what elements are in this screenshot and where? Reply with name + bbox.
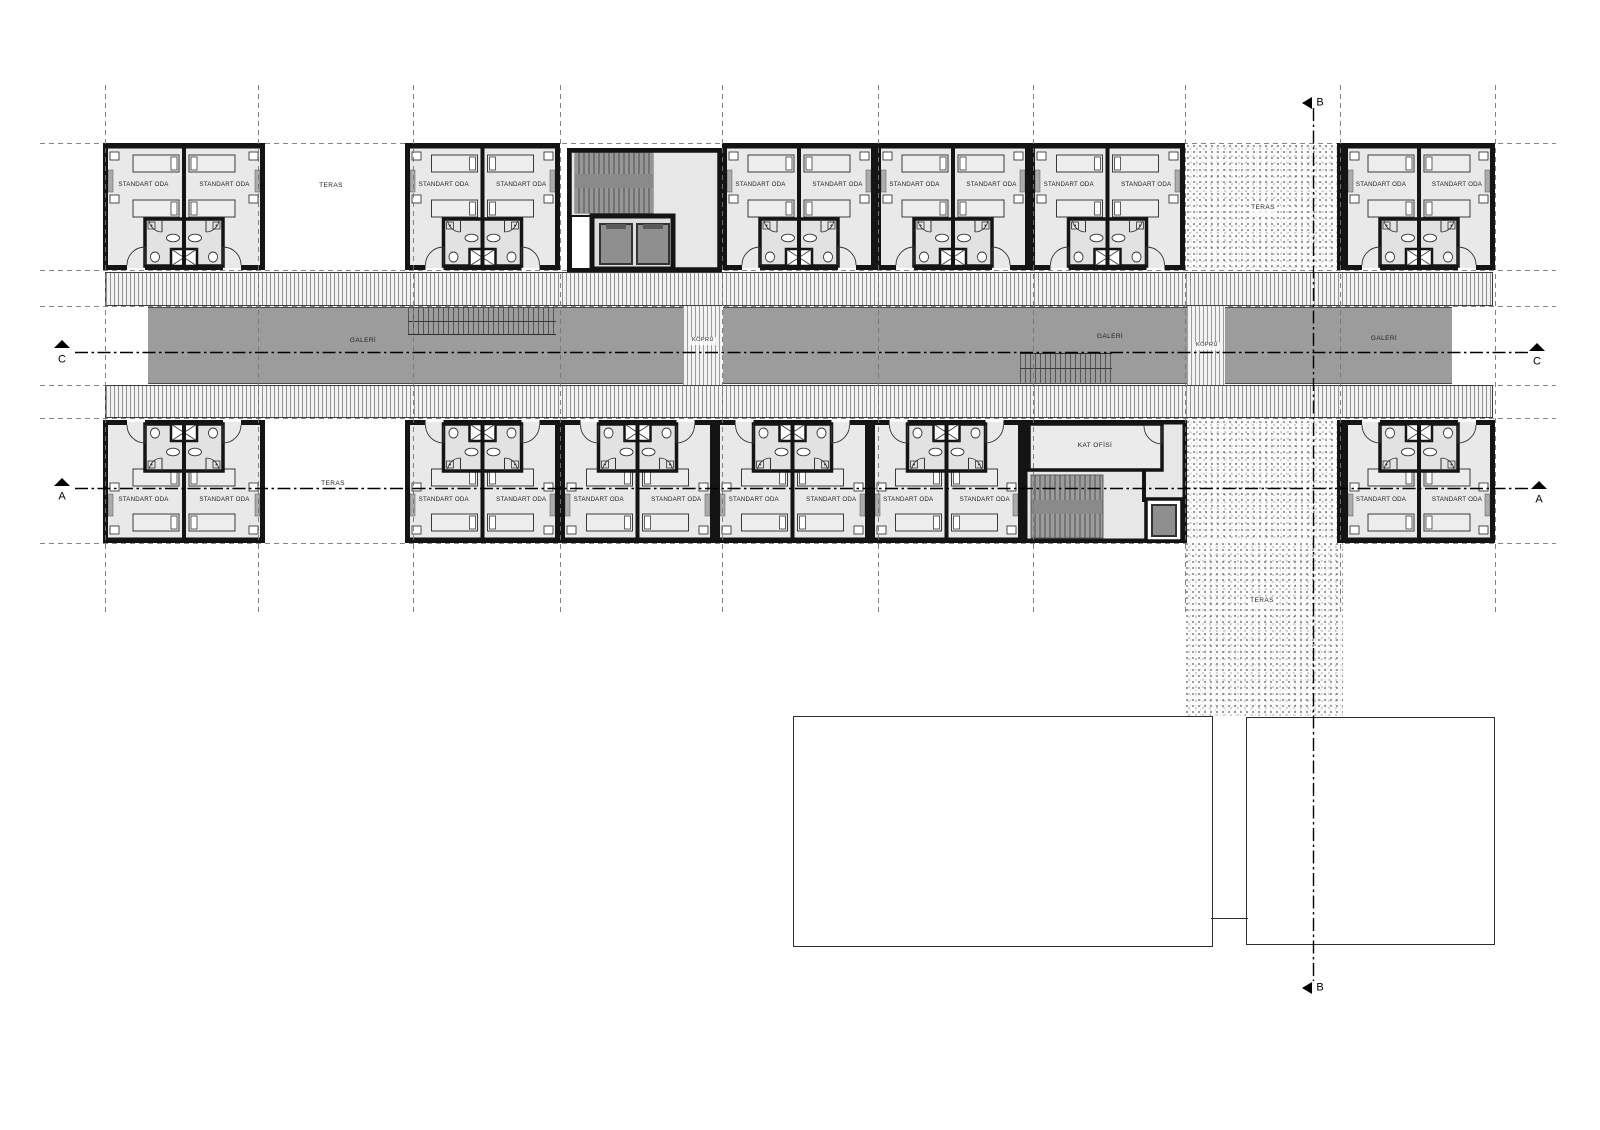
section-marker-b-top — [1302, 97, 1312, 109]
teras-label-bottom-room: TERAS — [321, 481, 345, 488]
section-marker-b-bottom — [1302, 982, 1312, 994]
section-letter-c-left: C — [58, 355, 66, 366]
teras-label-top-room: TERAS — [319, 183, 343, 190]
teras-label-strip-lower: TERAS — [1248, 597, 1276, 606]
section-marker-c-left — [54, 340, 70, 348]
kopru-label-1: KÖPRÜ — [690, 337, 716, 345]
galeri-label-2: GALERİ — [1097, 334, 1123, 341]
teras-label-strip-upper: TERAS — [1249, 204, 1277, 213]
kat-ofisi-label: KAT OFİSİ — [1078, 443, 1112, 450]
section-letter-a-left: A — [58, 492, 65, 503]
section-letter-c-right: C — [1533, 357, 1541, 368]
section-letter-a-right: A — [1535, 495, 1542, 506]
section-letter-b-bottom: B — [1316, 983, 1323, 994]
section-marker-c-right — [1529, 343, 1545, 351]
galeri-label-3: GALERİ — [1371, 336, 1397, 343]
section-marker-a-left — [54, 478, 70, 486]
kopru-label-2: KÖPRÜ — [1194, 342, 1220, 350]
floor-plan: STANDART ODASTANDART ODA STANDART ODASTA… — [0, 0, 1600, 1130]
section-marker-a-right — [1531, 481, 1547, 489]
galeri-label-1: GALERİ — [350, 338, 376, 345]
grid-and-section-layer — [0, 0, 1600, 1130]
section-letter-b-top: B — [1316, 98, 1323, 109]
